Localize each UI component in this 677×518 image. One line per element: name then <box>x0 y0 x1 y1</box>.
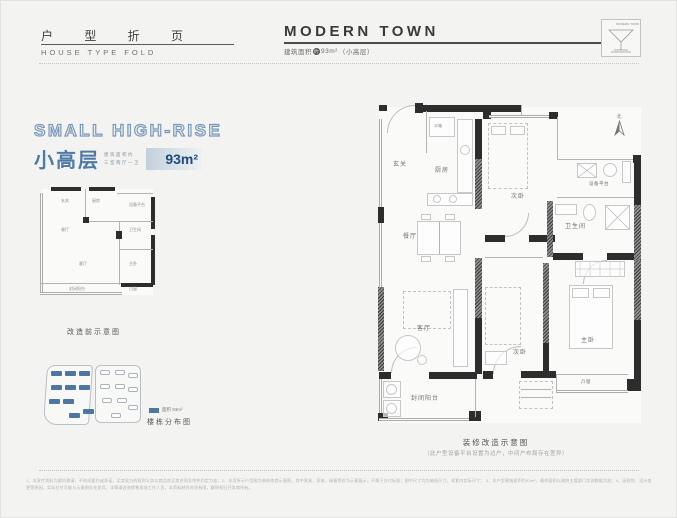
wall-segment <box>89 187 115 191</box>
brand-area-value: 93m² <box>321 48 338 55</box>
north-arrow: 北 <box>611 113 627 142</box>
before-plan-caption: 改造前示意图 <box>38 327 150 337</box>
window-line <box>379 375 382 417</box>
room-label-entry: 玄关 <box>393 159 407 168</box>
before-plan: 玄关 厨房 设备平台 餐厅 卫生间 客厅 主卧 凸窗 封闭阳台 <box>37 187 165 317</box>
building-highlight <box>65 371 76 376</box>
bathroom-sink <box>555 204 577 215</box>
site-map-caption: 楼栋分布图 <box>147 417 207 427</box>
stove-burner <box>449 195 457 203</box>
wall-segment <box>151 235 155 285</box>
north-arrow-icon <box>613 120 626 137</box>
main-plan: 水箱 <box>371 93 643 431</box>
plan-line <box>557 197 634 198</box>
window-line <box>40 292 122 295</box>
wall-segment <box>51 187 81 191</box>
site-map: 面积 93m² 楼栋分布图 <box>29 365 199 431</box>
dining-chair <box>445 256 455 262</box>
wall-hatched <box>543 263 549 343</box>
brand-underline <box>284 42 624 44</box>
wall-segment <box>475 318 482 374</box>
plan-line <box>485 257 543 258</box>
wall-segment <box>553 253 583 260</box>
tv-cabinet <box>453 289 468 367</box>
brochure-page: 户 型 折 页 HOUSE TYPE FOLD MODERN TOWN 建筑面积… <box>0 0 677 518</box>
wall-segment <box>634 161 641 205</box>
section-title-underline <box>41 44 234 45</box>
plan-line <box>439 222 440 254</box>
brand-area-line: 建筑面积 约 93m² （小高层） <box>284 46 374 56</box>
brand-logo-text: MODERN TOWN <box>616 23 639 27</box>
dining-chair <box>445 214 455 220</box>
room-label-master: 主卧 <box>581 335 595 344</box>
room-label-bathroom: 卫生间 <box>565 221 586 230</box>
room-label-bedroom-top: 次卧 <box>511 191 525 200</box>
header-dotted-divider <box>39 63 639 64</box>
bed-pillow <box>572 288 589 298</box>
building-highlight <box>79 371 90 376</box>
plan-line <box>117 193 153 194</box>
hero-title-en: SMALL HIGH-RISE <box>34 121 222 141</box>
wall-segment <box>116 231 122 239</box>
building-highlight <box>79 385 90 390</box>
wall-hatched <box>475 159 482 209</box>
building-highlight <box>63 399 74 404</box>
bed-pillow <box>510 126 525 135</box>
equipment-fan <box>603 163 617 177</box>
plan-line <box>556 374 557 392</box>
dryer-drum <box>386 403 397 414</box>
hero-title-row: 小高层 建筑面积约 三室两厅一卫 93m² <box>34 144 202 173</box>
plan-line <box>557 117 558 160</box>
hero-spec-line1: 建筑面积约 <box>104 152 140 158</box>
plan-line <box>119 249 153 250</box>
building-outline <box>115 370 125 375</box>
room-label: 卫生间 <box>129 227 141 233</box>
wall-hatched <box>378 287 384 371</box>
room-label: 厨房 <box>92 198 100 204</box>
building-highlight <box>51 385 62 390</box>
room-label: 餐厅 <box>61 227 69 233</box>
building-outline <box>100 370 110 375</box>
bed-pillow <box>491 126 506 135</box>
building-outline <box>100 384 110 389</box>
hero-area-badge: 93m² <box>146 148 202 170</box>
plan-line <box>41 283 121 284</box>
window-line <box>379 119 382 207</box>
brand-area-prefix: 建筑面积 <box>284 46 312 56</box>
room-label-kitchen: 厨房 <box>435 165 449 174</box>
building-outline <box>128 405 138 410</box>
wall-hatched <box>475 258 482 318</box>
brand-title: MODERN TOWN <box>284 23 439 40</box>
brand-logo-mark-icon <box>606 28 636 54</box>
building-highlight <box>69 413 80 418</box>
room-label: 设备平台 <box>129 202 145 208</box>
legend-swatch <box>149 408 159 413</box>
building-outline <box>102 398 112 403</box>
room-label: 封闭阳台 <box>69 286 85 292</box>
wall-hatched <box>634 260 641 320</box>
window-line <box>40 193 43 293</box>
footer-dotted-divider <box>39 470 639 471</box>
wall-segment <box>475 119 482 159</box>
washer-drum <box>386 384 397 395</box>
wall-segment <box>423 105 521 112</box>
room-label: 客厅 <box>79 261 87 267</box>
side-table <box>417 355 427 365</box>
toilet <box>583 204 596 221</box>
building-outline <box>115 384 125 389</box>
wall-segment <box>121 283 153 287</box>
dining-chair <box>421 214 431 220</box>
bed-pillow <box>593 288 610 298</box>
room-label: 玄关 <box>61 198 69 204</box>
plan-line <box>557 159 635 160</box>
wall-segment <box>379 105 387 111</box>
window-line <box>489 115 551 118</box>
building-highlight <box>49 399 60 404</box>
wall-segment <box>485 235 505 242</box>
bed-outline <box>485 287 521 345</box>
hero-spec-line2: 三室两厅一卫 <box>104 160 140 166</box>
main-plan-caption: 装修改造示意图 <box>371 437 621 448</box>
dining-chair <box>421 256 431 262</box>
main-plan-note: （此户型设备平台设置为边户，中间户布局存在差异） <box>371 449 621 457</box>
approx-circle-badge: 约 <box>313 48 320 55</box>
building-highlight <box>83 409 94 414</box>
section-title-cn: 户 型 折 页 <box>41 27 197 44</box>
wall-segment <box>634 320 641 383</box>
building-highlight <box>51 371 62 376</box>
water-tank-label: 水箱 <box>434 123 442 129</box>
wardrobe-hatch-icon <box>575 261 625 277</box>
kitchen-counter <box>457 119 473 193</box>
north-label: 北 <box>611 113 627 120</box>
room-label-bedroom-mid: 次卧 <box>513 347 527 356</box>
plan-line <box>521 389 551 390</box>
room-label-balcony: 封闭阳台 <box>411 393 439 402</box>
room-label-living: 客厅 <box>417 323 431 332</box>
room-label: 凸窗 <box>129 286 137 292</box>
wall-hatched <box>634 205 641 260</box>
window-line <box>379 418 475 421</box>
wall-segment <box>543 343 549 374</box>
wall-hatched <box>547 201 553 257</box>
wall-segment <box>415 103 423 113</box>
stove-burner <box>433 195 441 203</box>
hero-spec: 建筑面积约 三室两厅一卫 <box>104 152 140 166</box>
stairwell-outline <box>519 381 553 409</box>
room-label-bay-window: 凸窗 <box>581 379 591 385</box>
kitchen-sink <box>460 145 470 155</box>
wall-segment <box>483 371 493 379</box>
disclaimer: 1、本宣传资料为要约邀请，不构成要约或承诺，买卖双方的权利义务以商品房买卖合同及… <box>26 477 654 491</box>
window-line <box>379 223 382 287</box>
building-outline <box>117 398 127 403</box>
wall-segment <box>151 197 155 229</box>
building-outline <box>111 413 121 418</box>
plan-line <box>521 397 551 398</box>
hero-title-cn: 小高层 <box>34 144 100 173</box>
equipment-x-icon <box>577 163 597 178</box>
wall-segment <box>607 253 634 260</box>
plan-line <box>556 374 628 375</box>
building-highlight <box>65 385 76 390</box>
wall-segment <box>83 217 89 223</box>
plan-line <box>426 111 427 153</box>
equipment-duct <box>622 161 631 183</box>
section-title-en: HOUSE TYPE FOLD <box>41 48 156 57</box>
water-tank-box <box>429 117 455 137</box>
brand-logo: MODERN TOWN <box>601 19 641 57</box>
plan-line <box>475 377 476 417</box>
building-outline <box>128 387 138 392</box>
shower-x-icon <box>605 205 630 230</box>
room-label-dining: 餐厅 <box>403 231 417 240</box>
wall-segment <box>379 372 391 379</box>
wall-segment <box>378 207 384 223</box>
desk <box>485 351 507 365</box>
building-outline <box>128 373 138 378</box>
window-line <box>556 390 628 393</box>
wall-segment <box>429 372 477 379</box>
wall-segment <box>521 371 556 378</box>
disclaimer-line1: 1、本宣传资料为要约邀请，不构成要约或承诺，买卖双方的权利义务以商品房买卖合同及… <box>26 478 484 483</box>
room-label: 主卧 <box>129 261 137 267</box>
legend-label: 面积 93m² <box>162 407 183 413</box>
room-label-equipment: 设备平台 <box>589 181 609 187</box>
wall-segment <box>627 379 641 391</box>
brand-area-suffix: （小高层） <box>339 46 374 56</box>
